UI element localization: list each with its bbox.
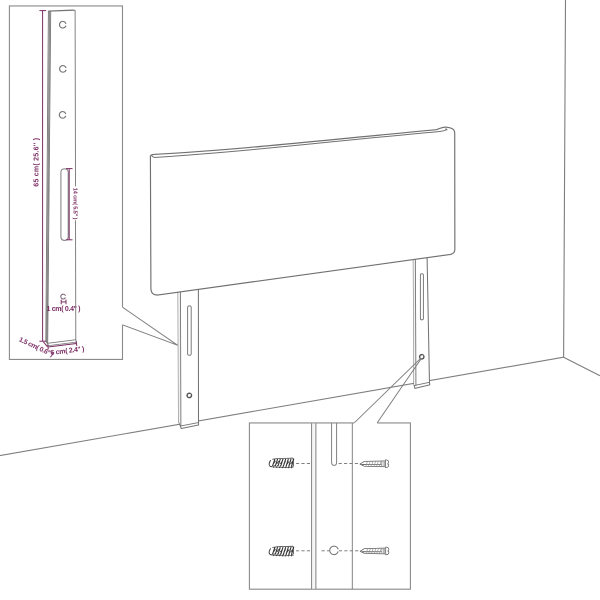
svg-text:1 cm( 0.4'' ): 1 cm( 0.4'' ) — [46, 306, 80, 313]
svg-text:14 cm( 5.5'' ): 14 cm( 5.5'' ) — [72, 188, 78, 220]
svg-text:65 cm( 25.6'' ): 65 cm( 25.6'' ) — [34, 138, 41, 187]
